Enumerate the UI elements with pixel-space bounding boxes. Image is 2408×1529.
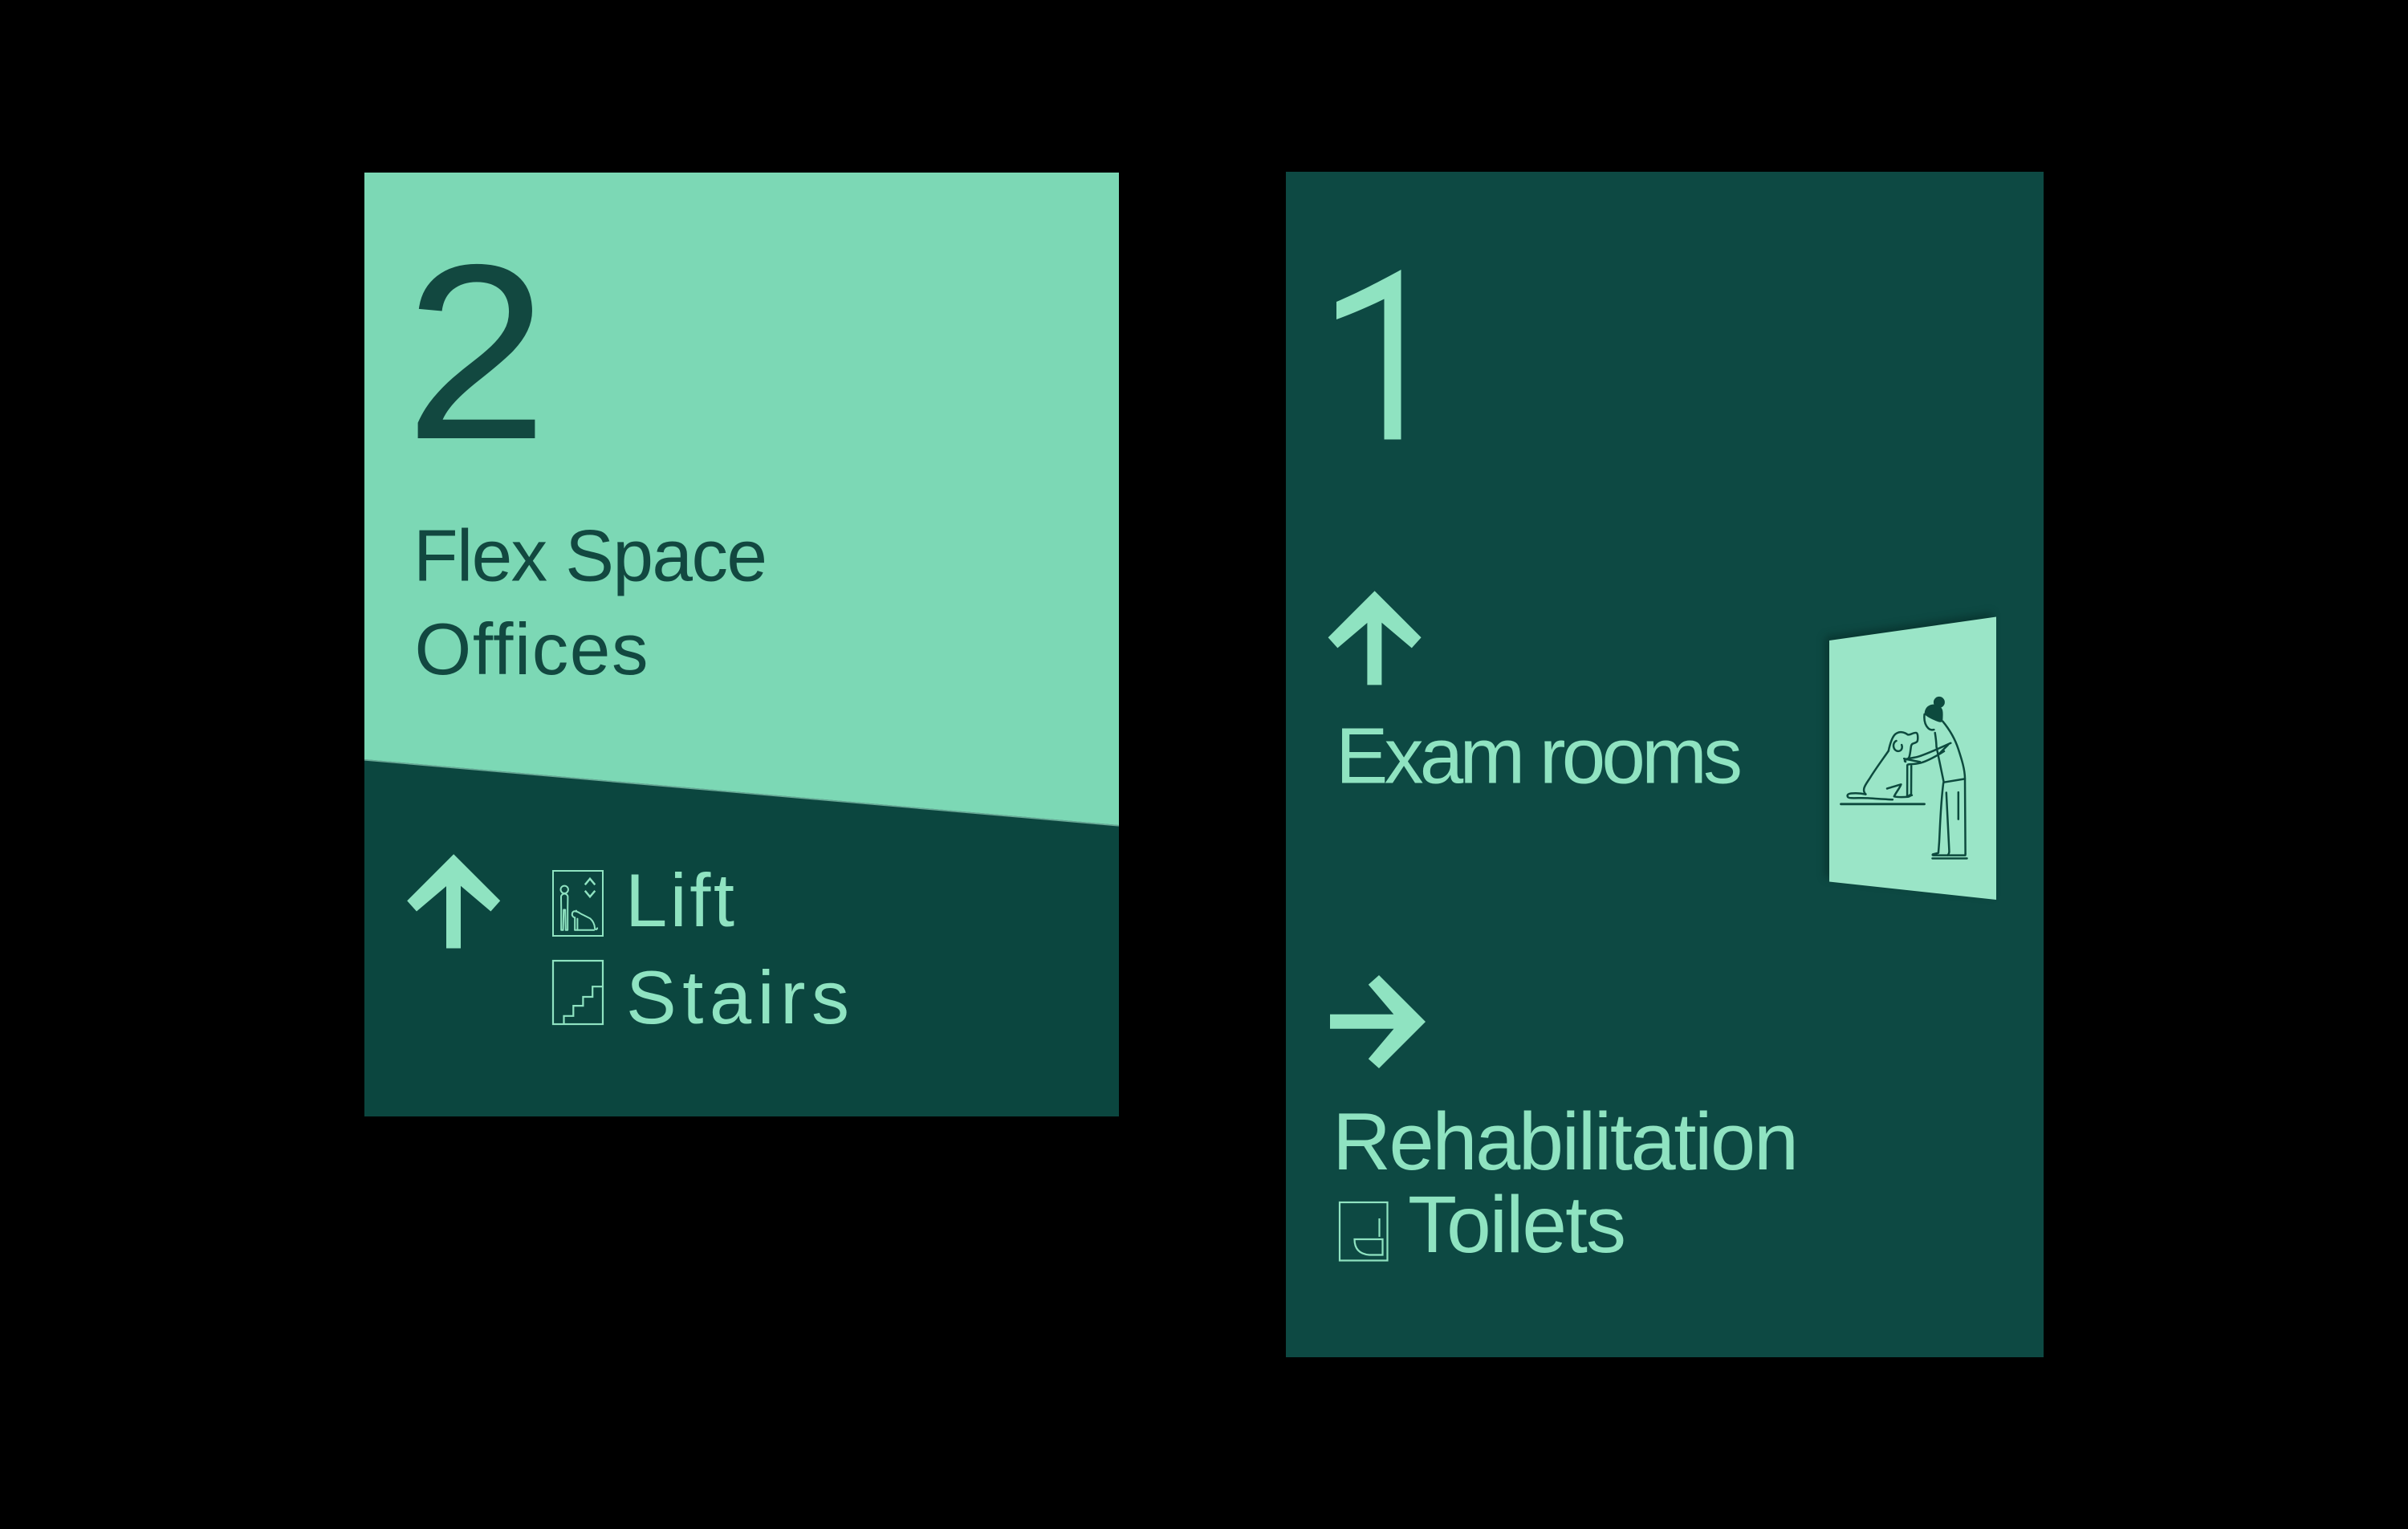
svg-text:Lift: Lift: [625, 858, 734, 942]
svg-text:Toilets: Toilets: [1408, 1180, 1626, 1270]
svg-text:Rehabilitation: Rehabilitation: [1332, 1097, 1799, 1187]
svg-text:Flex Space: Flex Space: [413, 516, 767, 597]
svg-text:Stairs: Stairs: [626, 955, 849, 1039]
svg-text:2: 2: [405, 212, 548, 491]
svg-text:Exam rooms: Exam rooms: [1336, 712, 1743, 800]
svg-text:Offices: Offices: [415, 609, 649, 690]
